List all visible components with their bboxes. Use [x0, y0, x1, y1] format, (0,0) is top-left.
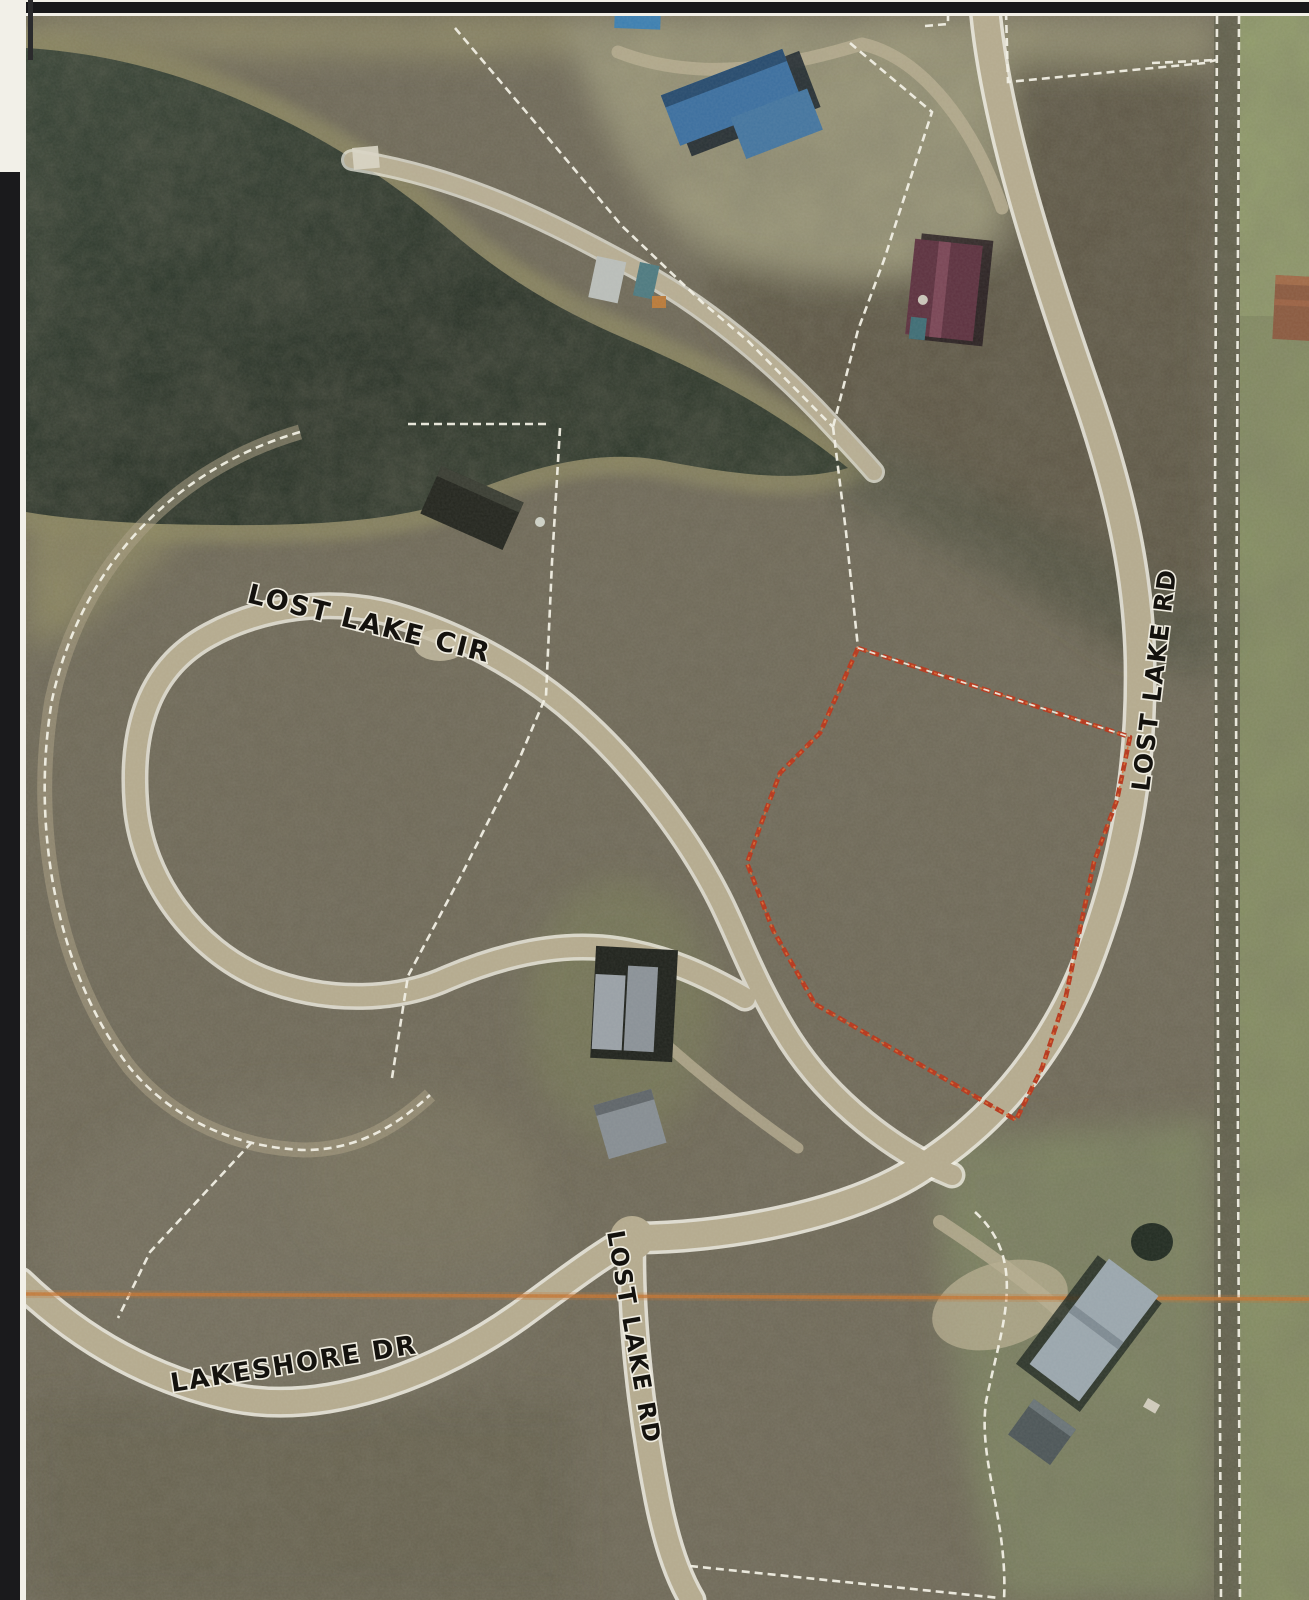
map-border-left [20, 172, 26, 1600]
scan-border-top [26, 2, 1309, 13]
scan-border-left [0, 172, 20, 1600]
map-border-top [26, 13, 1309, 16]
scan-edge-artifact [28, 0, 33, 60]
scanned-aerial-map: LOST LAKE CIR LOST LAKE RD LAKESHORE DR … [0, 0, 1309, 1600]
scan-margin-topleft [0, 0, 26, 172]
aerial-imagery: LOST LAKE CIR LOST LAKE RD LAKESHORE DR … [20, 6, 1309, 1600]
map-canvas: LOST LAKE CIR LOST LAKE RD LAKESHORE DR … [0, 0, 1309, 1600]
